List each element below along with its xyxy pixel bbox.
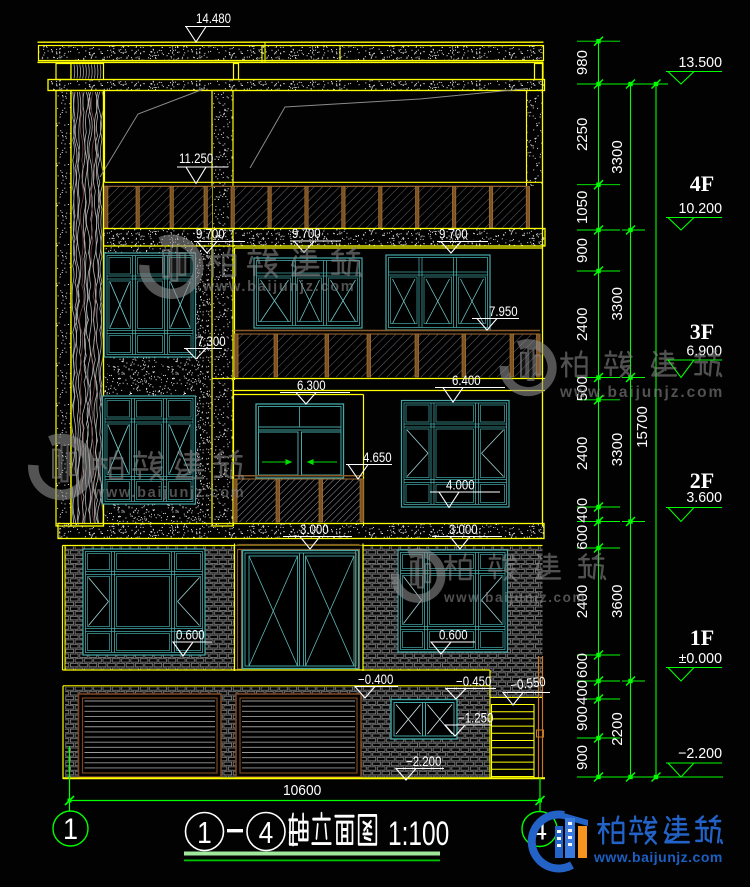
svg-text:www.baijunjz.com: www.baijunjz.com <box>202 279 355 295</box>
svg-text:900: 900 <box>574 706 591 731</box>
svg-text:0.600: 0.600 <box>439 628 468 643</box>
svg-text:600: 600 <box>574 653 591 678</box>
svg-text:3F: 3F <box>690 319 714 344</box>
svg-text:2400: 2400 <box>574 437 591 470</box>
svg-text:2200: 2200 <box>609 712 626 745</box>
svg-text:±0.000: ±0.000 <box>679 651 722 667</box>
svg-text:1: 1 <box>197 816 212 850</box>
svg-text:400: 400 <box>574 498 591 523</box>
svg-text:www.baijunjz.com: www.baijunjz.com <box>559 384 724 401</box>
svg-text:10600: 10600 <box>283 782 321 798</box>
svg-text:www.baijunjz.com: www.baijunjz.com <box>92 485 245 501</box>
svg-text:3300: 3300 <box>609 287 626 320</box>
svg-text:1F: 1F <box>690 625 714 650</box>
svg-text:9.700: 9.700 <box>292 226 321 241</box>
svg-text:15700: 15700 <box>634 406 651 448</box>
svg-text:0.600: 0.600 <box>176 628 205 643</box>
svg-text:3300: 3300 <box>609 433 626 466</box>
svg-text:6.400: 6.400 <box>452 373 481 388</box>
svg-text:900: 900 <box>574 745 591 770</box>
svg-text:−1.250: −1.250 <box>458 711 493 726</box>
svg-text:7.300: 7.300 <box>197 334 226 349</box>
svg-text:900: 900 <box>574 238 591 263</box>
svg-text:4.650: 4.650 <box>363 450 392 465</box>
svg-text:400: 400 <box>574 680 591 705</box>
svg-text:1050: 1050 <box>574 191 591 224</box>
svg-text:−2.200: −2.200 <box>406 754 441 769</box>
svg-text:980: 980 <box>574 50 591 75</box>
svg-text:2250: 2250 <box>574 118 591 151</box>
svg-text:3.000: 3.000 <box>449 522 478 537</box>
svg-text:600: 600 <box>574 525 591 550</box>
svg-text:www.baijunjz.com: www.baijunjz.com <box>443 590 586 605</box>
svg-text:www.baijunjz.com: www.baijunjz.com <box>593 849 723 865</box>
svg-text:7.950: 7.950 <box>489 304 518 319</box>
svg-text:4.000: 4.000 <box>446 478 475 493</box>
svg-text:1: 1 <box>63 813 78 847</box>
svg-text:3.600: 3.600 <box>686 490 722 506</box>
svg-text:1:100: 1:100 <box>388 815 449 853</box>
svg-text:9.700: 9.700 <box>439 227 468 242</box>
svg-text:11.250: 11.250 <box>179 151 213 166</box>
svg-text:10.200: 10.200 <box>678 201 722 217</box>
svg-text:2400: 2400 <box>574 308 591 341</box>
svg-text:3600: 3600 <box>609 585 626 618</box>
svg-text:−0.450: −0.450 <box>456 674 491 689</box>
svg-text:−2.200: −2.200 <box>678 746 722 762</box>
svg-text:3300: 3300 <box>609 140 626 173</box>
svg-text:3.000: 3.000 <box>300 522 329 537</box>
svg-text:4F: 4F <box>690 171 714 196</box>
svg-text:4: 4 <box>259 816 274 850</box>
svg-text:9.700: 9.700 <box>196 227 225 242</box>
svg-text:−0.400: −0.400 <box>358 672 393 687</box>
svg-text:6.300: 6.300 <box>297 378 326 393</box>
svg-text:14.480: 14.480 <box>196 11 231 26</box>
svg-text:13.500: 13.500 <box>678 55 722 71</box>
